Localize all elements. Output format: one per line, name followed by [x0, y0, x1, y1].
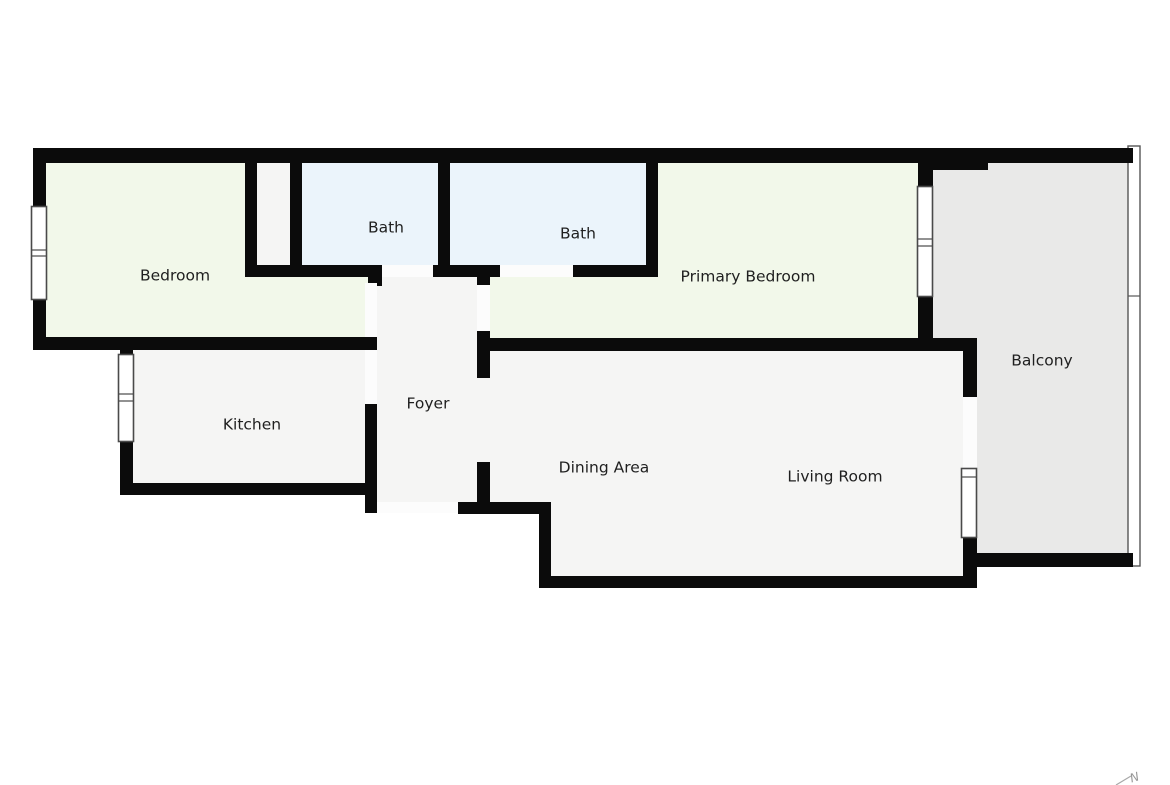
room-label-bedroom: Bedroom: [140, 267, 210, 285]
wall-bath1-left: [290, 148, 302, 277]
room-bath1-floor: [296, 155, 444, 271]
wall-balcony-top-stub: [933, 163, 988, 170]
balcony-door: [963, 397, 977, 468]
wall-balcony-bottom: [973, 553, 1133, 567]
room-label-primary-bedroom: Primary Bedroom: [681, 268, 816, 286]
kitchen-opening: [365, 350, 377, 404]
room-dining-living-floor: [483, 344, 970, 582]
room-label-kitchen: Kitchen: [223, 416, 281, 434]
bedroom-door: [365, 283, 377, 337]
wall-bedroom-bottom: [33, 337, 377, 350]
wall-primary-right-top: [918, 155, 933, 188]
room-label-bath-1: Bath: [368, 219, 404, 237]
north-arrow-line: [1116, 776, 1131, 785]
north-arrow-icon: N: [1116, 769, 1141, 785]
wall-bath-bottom-a: [245, 265, 382, 277]
wall-bedroom-right: [245, 148, 257, 267]
wall-dining-step: [539, 502, 551, 588]
wall-bath2-right: [646, 148, 658, 277]
wall-top: [33, 148, 1133, 163]
wall-bottom: [539, 576, 977, 588]
wall-foyer-stub-upper: [477, 331, 490, 378]
room-label-foyer: Foyer: [407, 395, 451, 413]
room-label-balcony: Balcony: [1011, 352, 1072, 370]
room-label-bath-2: Bath: [560, 225, 596, 243]
floorplan-drawing: BedroomBathBathPrimary BedroomBalconyKit…: [0, 0, 1170, 785]
wall-living-right-upper: [963, 344, 977, 397]
wall-bath-divider: [438, 148, 450, 267]
wall-dining-top: [477, 338, 977, 351]
wall-entry: [458, 502, 551, 514]
floorplan-page: BedroomBathBathPrimary BedroomBalconyKit…: [0, 0, 1170, 785]
wall-bath2-door-stub: [477, 277, 490, 285]
wall-bath-bottom-c: [573, 265, 658, 277]
wall-foyer-stub-lower: [477, 462, 490, 513]
bath1-door: [382, 265, 433, 277]
closet-floor: [251, 155, 296, 271]
room-label-dining-area: Dining Area: [559, 459, 650, 477]
wall-kitchen-bottom: [120, 483, 377, 495]
bedroom-window-icon: [32, 207, 47, 300]
wall-bath-bottom-b: [433, 265, 500, 277]
balcony-railing: [1128, 146, 1140, 566]
bath2-door: [500, 265, 573, 277]
balcony-railing-rail: [1128, 146, 1140, 566]
primary-bedroom-door: [477, 285, 490, 331]
entry-door: [377, 502, 458, 513]
room-label-living-room: Living Room: [787, 468, 882, 486]
primary-bedroom-window-icon: [918, 187, 933, 297]
wall-kitchen-right: [365, 404, 377, 513]
living-room-window-icon: [962, 469, 977, 538]
kitchen-window-icon: [119, 355, 134, 442]
room-bath2-floor: [444, 155, 658, 271]
room-foyer-floor: [371, 271, 489, 512]
